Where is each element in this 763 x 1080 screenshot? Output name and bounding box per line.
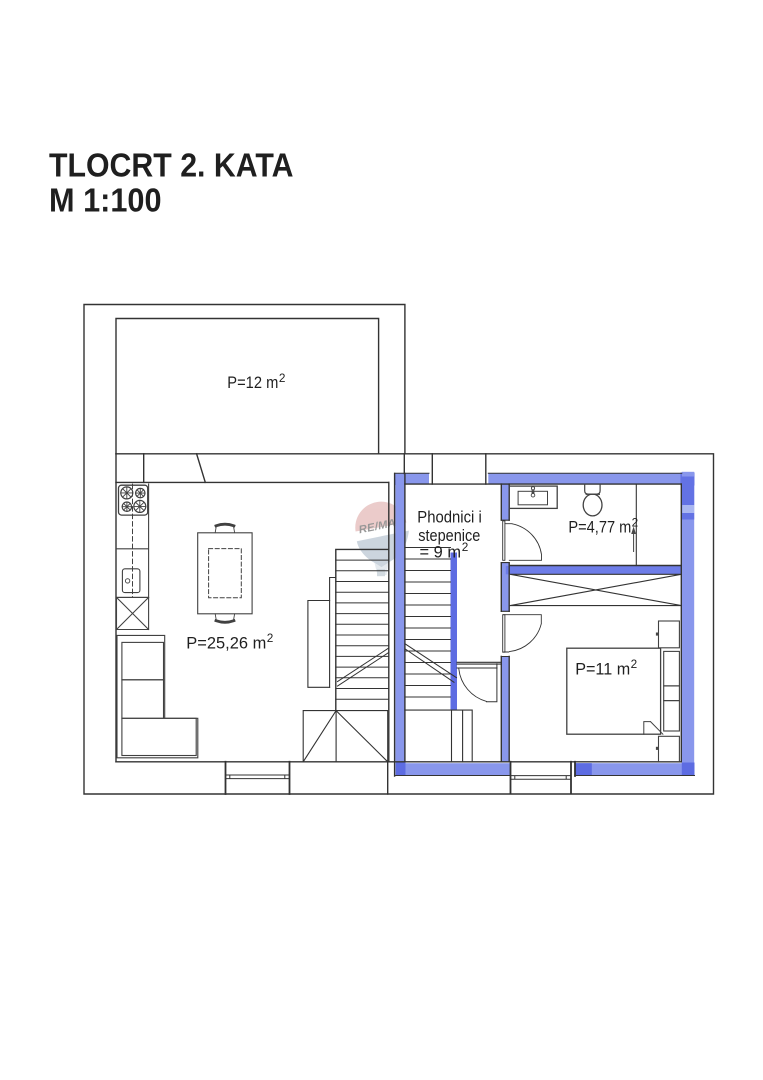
svg-text:P=11 m: P=11 m [575,659,630,678]
svg-text:P=12 m: P=12 m [227,373,278,392]
svg-text:P=4,77 m: P=4,77 m [568,518,631,537]
svg-text:2: 2 [279,371,286,385]
svg-text:Phodnici i: Phodnici i [417,507,482,526]
svg-text:2: 2 [462,540,469,554]
svg-text:= 9 m: = 9 m [420,543,462,562]
svg-text:2: 2 [632,515,639,529]
svg-text:2: 2 [267,631,274,645]
svg-text:P=25,26 m: P=25,26 m [186,633,266,652]
svg-text:2: 2 [631,657,638,671]
svg-text:M 1:100: M 1:100 [49,182,162,219]
svg-text:TLOCRT 2. KATA: TLOCRT 2. KATA [49,147,294,184]
